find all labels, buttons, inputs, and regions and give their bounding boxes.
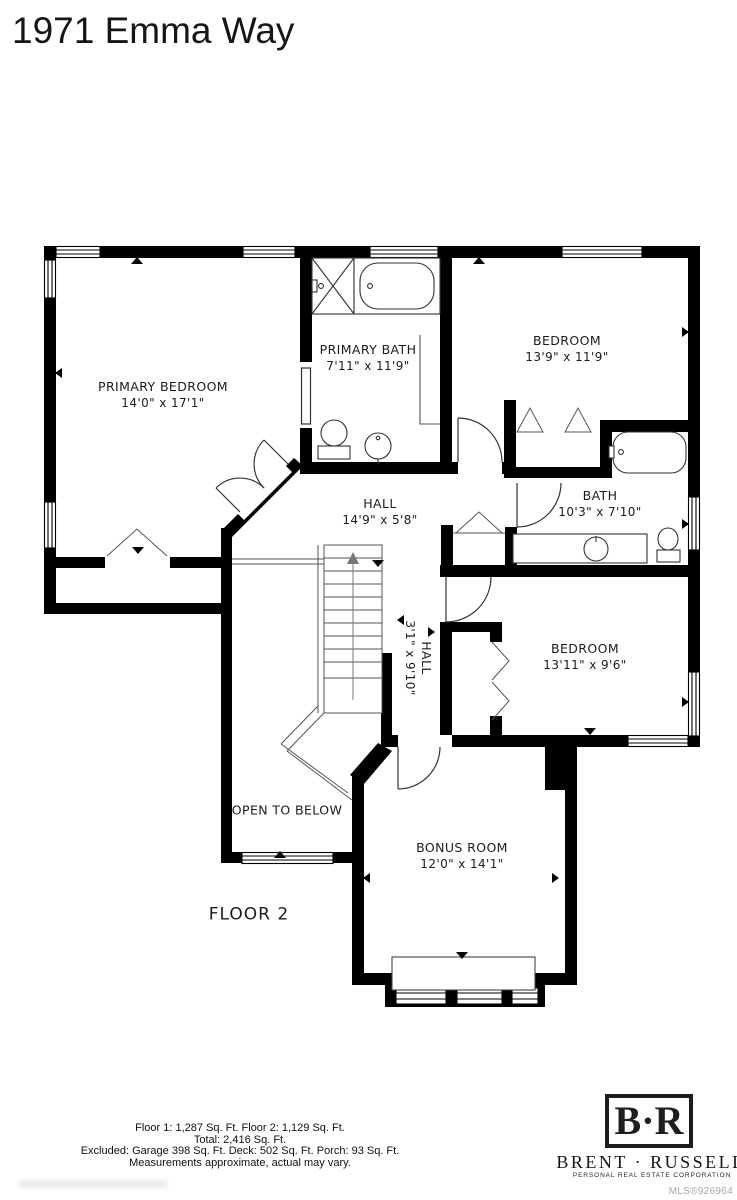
window-symbol [243, 247, 295, 258]
brokerage-name: BRENT · RUSSELL [556, 1152, 737, 1173]
room-label-hall-vertical: HALL 3'1" x 9'10" [401, 620, 435, 695]
shower-symbol [312, 258, 354, 314]
room-dims: 10'3" x 7'10" [558, 504, 641, 521]
door-arc [458, 418, 502, 462]
toilet-symbol [318, 420, 350, 459]
window-symbol [562, 247, 642, 258]
room-name: PRIMARY BATH [320, 341, 417, 358]
stairs [232, 545, 382, 800]
toilet-symbol [657, 528, 680, 562]
logo-monogram: B·R [615, 1101, 684, 1141]
room-name: BONUS ROOM [416, 839, 508, 856]
sink-symbol [513, 534, 647, 563]
room-dims: 13'9" x 11'9" [525, 349, 608, 366]
room-dims: 7'11" x 11'9" [320, 358, 417, 375]
room-name: BEDROOM [525, 332, 608, 349]
bathtub-symbol [354, 258, 440, 314]
room-dims: 13'11" x 9'6" [543, 657, 626, 674]
floorplan-drawing [0, 0, 737, 1200]
open-to-below-label: OPEN TO BELOW [232, 802, 342, 819]
door-arc [398, 747, 440, 789]
window-symbol [56, 247, 100, 258]
sink-symbol [365, 433, 391, 464]
room-label-bath: BATH 10'3" x 7'10" [558, 487, 641, 521]
room-label-bedroom-bottom: BEDROOM 13'11" x 9'6" [543, 640, 626, 674]
room-label-primary-bath: PRIMARY BATH 7'11" x 11'9" [320, 341, 417, 375]
door-opening [233, 461, 292, 520]
window-symbol [370, 247, 438, 258]
room-label-primary-bedroom: PRIMARY BEDROOM 14'0" x 17'1" [98, 378, 228, 412]
room-dims: 12'0" x 14'1" [416, 856, 508, 873]
floor-label: FLOOR 2 [209, 907, 289, 924]
window-symbol [45, 502, 56, 548]
room-dims: 3'1" x 9'10" [401, 620, 418, 695]
hanger-rod-symbol [456, 512, 502, 533]
door-arc [446, 577, 491, 622]
door-panel [302, 368, 311, 424]
window-symbol [689, 672, 700, 736]
mls-number: MLS®926964 [669, 1186, 733, 1197]
window-symbol [628, 736, 688, 747]
room-name: HALL [418, 620, 435, 695]
room-label-hall: HALL 14'9" x 5'8" [342, 495, 417, 529]
room-label-bonus-room: BONUS ROOM 12'0" x 14'1" [416, 839, 508, 873]
room-name: BEDROOM [543, 640, 626, 657]
scan-smudge [18, 1180, 168, 1188]
window-symbol [689, 497, 700, 550]
room-dims: 14'0" x 17'1" [98, 395, 228, 412]
bathtub-symbol [609, 432, 686, 473]
bifold-door-symbol [492, 682, 509, 720]
hanger-rod-symbol [565, 408, 591, 432]
window-seat [392, 957, 535, 990]
room-name: PRIMARY BEDROOM [98, 378, 228, 395]
room-name: BATH [558, 487, 641, 504]
window-symbol [45, 260, 56, 298]
hanger-rod-symbol [517, 408, 543, 432]
area-summary: Floor 1: 1,287 Sq. Ft. Floor 2: 1,129 Sq… [81, 1123, 400, 1169]
stair-turn-railing [281, 706, 382, 800]
area-line-4: Measurements approximate, actual may var… [81, 1158, 400, 1170]
room-label-bedroom-top: BEDROOM 13'9" x 11'9" [525, 332, 608, 366]
area-line-1: Floor 1: 1,287 Sq. Ft. Floor 2: 1,129 Sq… [81, 1123, 400, 1135]
floorplan-page: 1971 Emma Way [0, 0, 737, 1200]
brokerage-logo: B·R [605, 1094, 693, 1148]
door-arc [517, 483, 561, 527]
counter-line [420, 335, 440, 424]
bifold-door-symbol [492, 642, 509, 680]
room-dims: 14'9" x 5'8" [342, 512, 417, 529]
brokerage-tagline: PERSONAL REAL ESTATE CORPORATION [573, 1172, 731, 1179]
room-name: HALL [342, 495, 417, 512]
window-symbol [242, 853, 333, 864]
